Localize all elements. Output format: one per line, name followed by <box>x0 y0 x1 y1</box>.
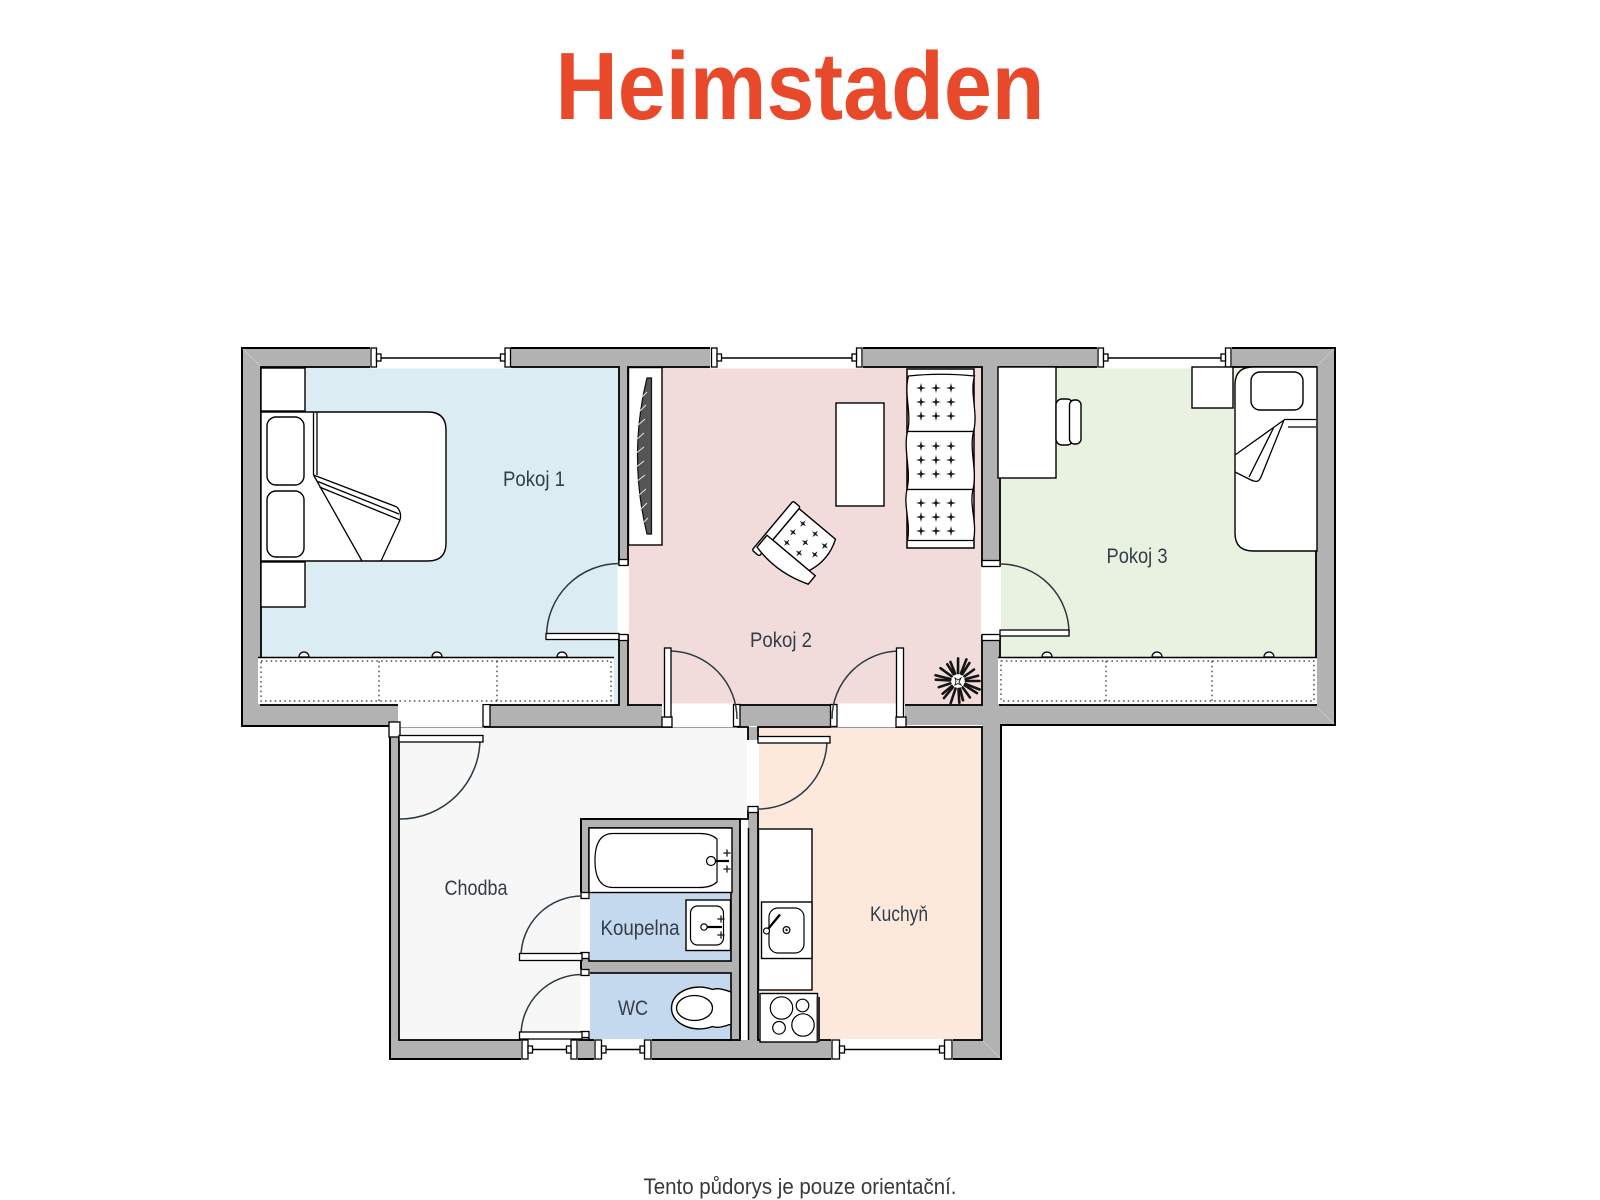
svg-text:Pokoj 2: Pokoj 2 <box>750 628 812 652</box>
svg-text:Kuchyň: Kuchyň <box>870 902 928 926</box>
svg-text:Koupelna: Koupelna <box>601 916 680 940</box>
svg-text:Tento půdorys je pouze orienta: Tento půdorys je pouze orientační. <box>644 1174 957 1199</box>
svg-text:WC: WC <box>618 996 648 1020</box>
svg-text:Pokoj 1: Pokoj 1 <box>503 467 565 491</box>
svg-text:Pokoj 3: Pokoj 3 <box>1107 544 1168 568</box>
svg-text:Heimstaden: Heimstaden <box>556 33 1045 140</box>
svg-text:Chodba: Chodba <box>445 876 508 900</box>
